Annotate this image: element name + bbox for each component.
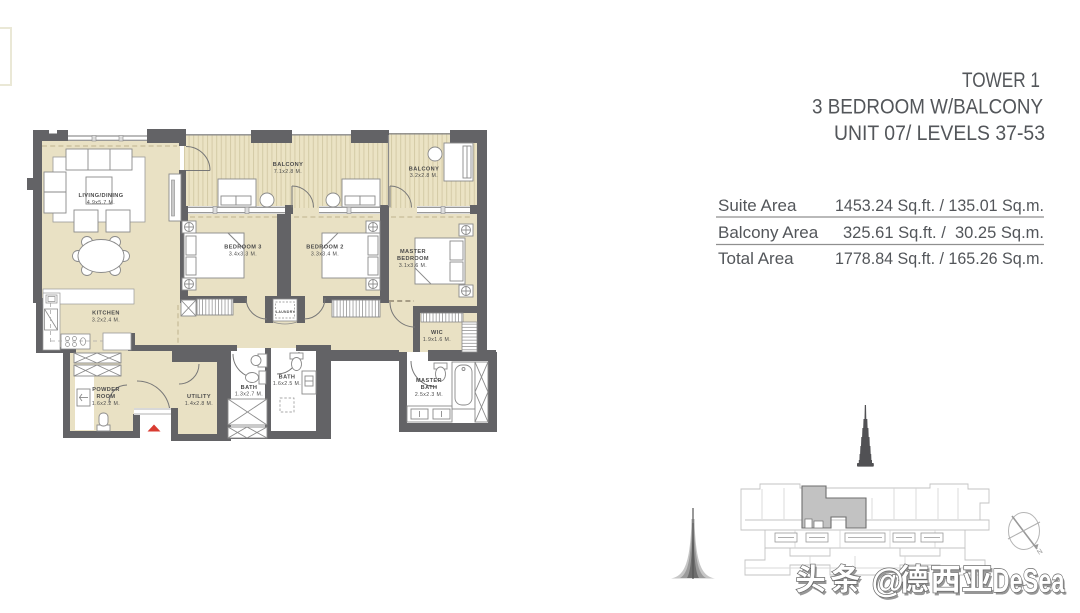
svg-text:BATH: BATH	[241, 385, 258, 391]
svg-text:BALCONY: BALCONY	[409, 167, 439, 173]
svg-text:Total Area: Total Area	[718, 249, 794, 268]
svg-text:BEDROOM 2: BEDROOM 2	[306, 245, 343, 251]
svg-text:1453.24 Sq.ft. / 135.01 Sq.m.: 1453.24 Sq.ft. / 135.01 Sq.m.	[835, 196, 1044, 215]
svg-text:UTILITY: UTILITY	[187, 394, 211, 400]
svg-text:BALCONY: BALCONY	[273, 162, 303, 168]
svg-text:ROOM: ROOM	[96, 394, 115, 400]
svg-text:N: N	[1036, 548, 1044, 557]
svg-text:4.9x5.7 M.: 4.9x5.7 M.	[87, 200, 115, 206]
svg-text:@: @	[872, 562, 904, 599]
svg-text:3.4x3.3 M.: 3.4x3.3 M.	[229, 252, 257, 258]
svg-text:2.5x2.3 M.: 2.5x2.3 M.	[415, 392, 443, 398]
svg-text:Suite Area: Suite Area	[718, 196, 797, 215]
svg-text:7.1x2.8 M.: 7.1x2.8 M.	[274, 169, 302, 175]
svg-text:TOWER 1: TOWER 1	[962, 69, 1040, 92]
svg-text:1.9x1.6 M.: 1.9x1.6 M.	[423, 337, 451, 343]
svg-text:3.2x2.4 M.: 3.2x2.4 M.	[92, 318, 120, 324]
svg-text:325.61 Sq.ft. / 30.25 Sq.m.: 325.61 Sq.ft. / 30.25 Sq.m.	[843, 223, 1044, 242]
svg-text:POWDER: POWDER	[92, 387, 120, 393]
svg-text:MASTER: MASTER	[400, 249, 426, 255]
svg-text:1778.84 Sq.ft. / 165.26 Sq.m.: 1778.84 Sq.ft. / 165.26 Sq.m.	[835, 249, 1044, 268]
svg-text:1.4x2.8 M.: 1.4x2.8 M.	[185, 401, 213, 407]
svg-text:Balcony Area: Balcony Area	[718, 223, 819, 242]
svg-text:MASTER: MASTER	[416, 378, 442, 384]
svg-text:BATH: BATH	[421, 385, 438, 391]
svg-text:LIVING/DINING: LIVING/DINING	[79, 193, 124, 199]
svg-text:BEDROOM: BEDROOM	[397, 256, 429, 262]
svg-text:DeSea: DeSea	[993, 562, 1065, 599]
svg-text:1.3x2.7 M.: 1.3x2.7 M.	[235, 392, 263, 398]
svg-text:BEDROOM 3: BEDROOM 3	[224, 245, 261, 251]
svg-text:1.6x2.5 M.: 1.6x2.5 M.	[273, 381, 301, 387]
svg-text:3.3x3.4 M.: 3.3x3.4 M.	[311, 252, 339, 258]
svg-text:BATH: BATH	[279, 375, 296, 381]
svg-text:WIC: WIC	[431, 330, 443, 336]
svg-text:KITCHEN: KITCHEN	[92, 311, 120, 317]
svg-text:UNIT 07/ LEVELS 37-53: UNIT 07/ LEVELS 37-53	[834, 122, 1045, 145]
svg-text:3 BEDROOM W/BALCONY: 3 BEDROOM W/BALCONY	[812, 96, 1043, 119]
svg-text:3.1x3.6 M.: 3.1x3.6 M.	[399, 263, 427, 269]
svg-text:3.2x2.8 M.: 3.2x2.8 M.	[410, 173, 438, 179]
svg-text:LAUNDRY: LAUNDRY	[276, 310, 296, 314]
svg-text:1.6x2.2 M.: 1.6x2.2 M.	[92, 401, 120, 407]
